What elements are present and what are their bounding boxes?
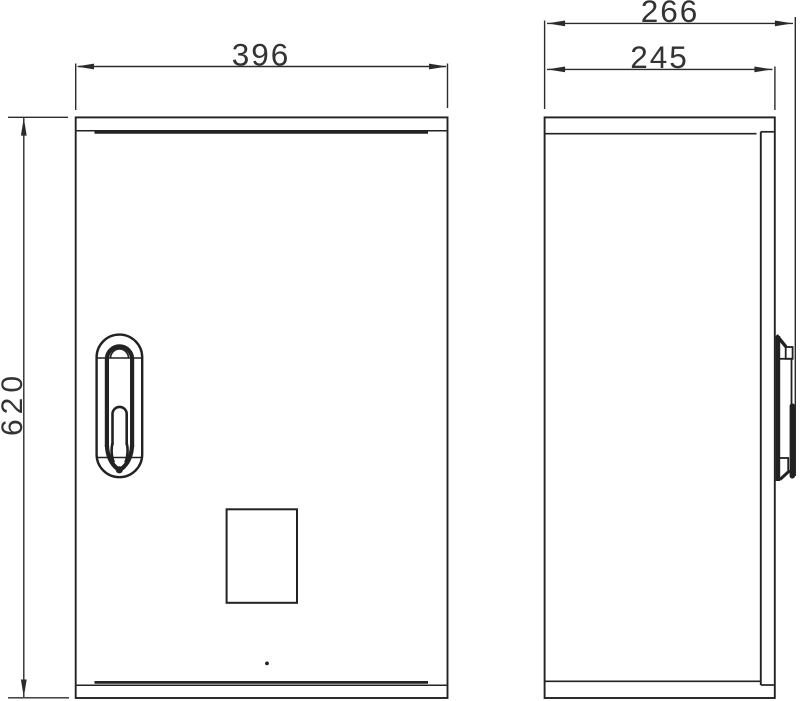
svg-text:266: 266 (641, 0, 700, 29)
